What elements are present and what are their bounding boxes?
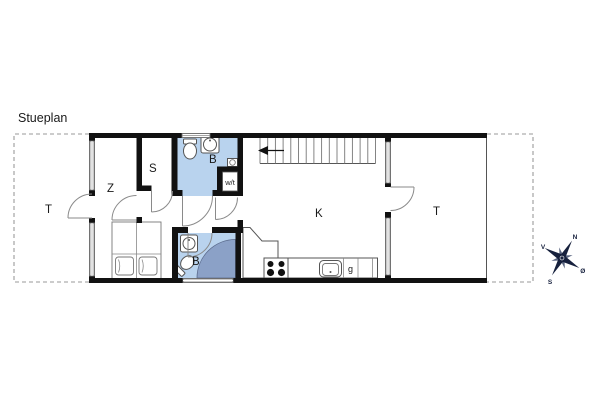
room-label-bath-lower: B bbox=[192, 256, 200, 268]
door-storage bbox=[152, 191, 173, 212]
terrace-left-outline bbox=[14, 134, 95, 282]
room-label-storage: S bbox=[149, 163, 157, 175]
door-right-terrace bbox=[391, 187, 415, 211]
page-title: Stueplan bbox=[18, 111, 67, 125]
window-top-bath bbox=[182, 134, 210, 138]
staircase bbox=[258, 138, 376, 164]
door-hall-kitchen bbox=[216, 198, 238, 220]
room-label-washer-dryer: w/t bbox=[224, 178, 236, 187]
door-bedroom bbox=[112, 196, 137, 221]
compass-rose: N Ø S V bbox=[535, 231, 590, 286]
compass-letter-east: Ø bbox=[580, 268, 585, 275]
washbasin-lower-icon bbox=[181, 235, 198, 252]
stair-direction-arrow bbox=[258, 146, 284, 155]
door-bath-upper bbox=[183, 196, 213, 226]
window-bottom-bath bbox=[183, 279, 233, 283]
stove-icon bbox=[264, 258, 288, 278]
room-label-bedroom: Z bbox=[107, 183, 114, 195]
door-left-terrace bbox=[68, 194, 92, 218]
terrace-right-outline bbox=[487, 134, 533, 282]
window-left-lower bbox=[90, 223, 95, 276]
compass-letter-north: N bbox=[573, 234, 578, 241]
room-label-terrace-right: T bbox=[433, 206, 440, 218]
floorplan-svg: Stueplan bbox=[0, 0, 600, 400]
room-label-kitchen: K bbox=[315, 208, 323, 220]
kitchen-sink-icon bbox=[320, 261, 342, 278]
kitchen-counter bbox=[243, 228, 378, 279]
washbasin-upper-icon bbox=[201, 136, 219, 153]
hand-basin-icon bbox=[228, 159, 238, 167]
window-left-upper bbox=[90, 141, 95, 190]
compass-letter-south: S bbox=[548, 279, 553, 286]
toilet-upper-icon bbox=[184, 139, 197, 159]
room-label-terrace-left: T bbox=[45, 204, 52, 216]
window-right-lower bbox=[386, 218, 391, 275]
floorplan-page: Stueplan bbox=[0, 0, 600, 400]
compass-letter-west: V bbox=[541, 244, 546, 251]
bed-icon bbox=[112, 222, 161, 279]
label-appliance-g: g bbox=[348, 264, 353, 274]
window-right-upper bbox=[386, 142, 391, 183]
room-label-bath-upper: B bbox=[209, 154, 217, 166]
